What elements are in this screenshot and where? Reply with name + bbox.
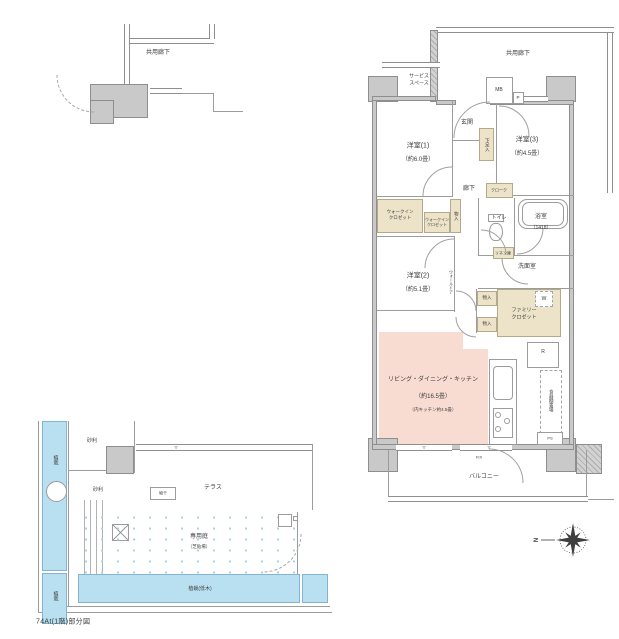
wall-line [514,198,515,256]
wall-line [452,100,453,196]
wall-line [312,444,313,510]
hall-label: 廊下 [463,186,475,194]
stove-burner [504,418,510,424]
structural-column [546,76,576,102]
wall-line [377,310,455,311]
wall-double-line [130,38,214,44]
entrance-label: 玄関 [461,120,473,128]
shoe-cabinet-label: 下足入 [485,138,490,152]
boundary-line [38,421,39,613]
corridor-wall [607,33,613,193]
corridor-right-label: 共用廊下 [506,51,530,59]
washroom-label: 洗面室 [518,264,536,272]
floorplan-canvas: 共用廊下 MB P 下足入 ウォークイン クロゼット ウォークイン クロゼット … [0,0,619,639]
kitchen-sink [493,366,513,400]
window-mark: ▽ [422,444,425,449]
stove-burner [495,426,501,432]
unit-wall-top [372,96,436,101]
bedroom1-label: 洋室(1) [407,141,430,150]
storage-a-label: 物入 [483,295,492,301]
planting-left-top-label: 植栽 [53,455,58,465]
balcony-railing [388,496,588,502]
meter-box-label: MB [495,87,503,94]
unit-wall-left [372,100,377,445]
fix-window-label: FIX [476,454,482,459]
entrance-step-line [452,140,480,141]
wall-line [377,236,455,237]
ldk-label: リビング・ダイニング・キッチン [388,377,478,385]
structural-column [576,444,602,474]
faucet-box [278,514,292,527]
window-double-line [150,88,182,94]
stove-burner [495,412,501,418]
pipe-shaft-label: PS [547,435,552,440]
wall-line [213,111,243,112]
walk-in-closet-1-label: ウォークイン クロゼット [387,209,414,221]
wall-double-line [209,24,215,39]
corridor-left-label: 共用廊下 [146,50,170,58]
balcony-wall [586,450,587,500]
garden-note: （芝貼場） [188,544,211,550]
washer-label: W [542,296,547,303]
family-closet-label: ファミリー クロゼット [511,308,536,321]
storage-vertical-label: 物入 [454,212,459,221]
bedroom3-size: （約4.5畳） [511,151,543,159]
window-mark: ▽ [174,444,177,449]
tree-circle [46,481,67,502]
wall-line [134,421,135,473]
bath-label: 浴室 [535,214,547,222]
gravel1-label: 砂利 [87,438,97,445]
bedroom1-size: （約6.0畳） [402,157,434,165]
window-double-line [136,444,312,451]
cupboard-label: 食器棚置場 [549,390,554,413]
bedroom2-size: （約5.1畳） [402,287,434,295]
boundary-line [38,612,332,613]
wall-line [377,196,453,197]
wall-line [454,236,455,312]
unit-wall-right [569,100,574,445]
compass-rose [551,518,595,562]
boundary-line [58,606,330,607]
refrigerator-label: R [541,349,545,356]
balcony-wall [388,450,389,500]
service-space-label: サービス スペース [409,74,429,87]
walk-in-closet-2-label: ウォークイン クロゼット [425,217,449,227]
window-double-line [520,96,548,102]
service-space-railing [382,62,440,68]
pipe-space-label: P [516,95,519,101]
ldk-size: （約16.5畳） [415,394,451,402]
unit-wall-top [436,100,456,105]
planting-left-bottom-label: 植栽 [53,591,58,601]
bath-size: （1418） [530,225,551,232]
north-label: N [534,538,542,542]
laundry-pole-label: 物干 [159,490,167,495]
ldk-note: （内キッチン約4.5畳） [410,407,457,413]
ldk-area-kitchen-side [462,349,488,445]
gravel2-label: 砂利 [93,487,103,494]
toilet-label: トイレ [491,215,506,222]
bedroom2-label: 洋室(2) [407,271,430,280]
terrace-label: テラス [204,485,222,493]
wall-line [182,93,214,94]
planting-low-strip-right [302,574,328,603]
wall-double-line [124,24,130,88]
plan-caption: 74At(1階)部分図 [36,617,90,626]
structural-column [106,446,134,474]
garden-label: 専用庭 [190,534,208,542]
storage-b-label: 物入 [483,321,492,327]
ldk-area [379,332,463,445]
wall-line [478,198,479,256]
linen-storage-label: リネン庫 [495,250,511,255]
balcony-label: バルコニー [469,474,499,482]
wall-line [213,93,214,112]
boundary-line [588,499,614,500]
wall-line [68,421,69,607]
corridor-wall [436,27,614,33]
bedroom3-label: 洋室(3) [516,135,539,144]
wall-door-label: ウォールドア [449,270,453,294]
window-mark: ▽ [487,444,490,449]
cloak-label: クローク [491,187,507,192]
planting-low-label: 植栽(低木) [188,586,211,593]
